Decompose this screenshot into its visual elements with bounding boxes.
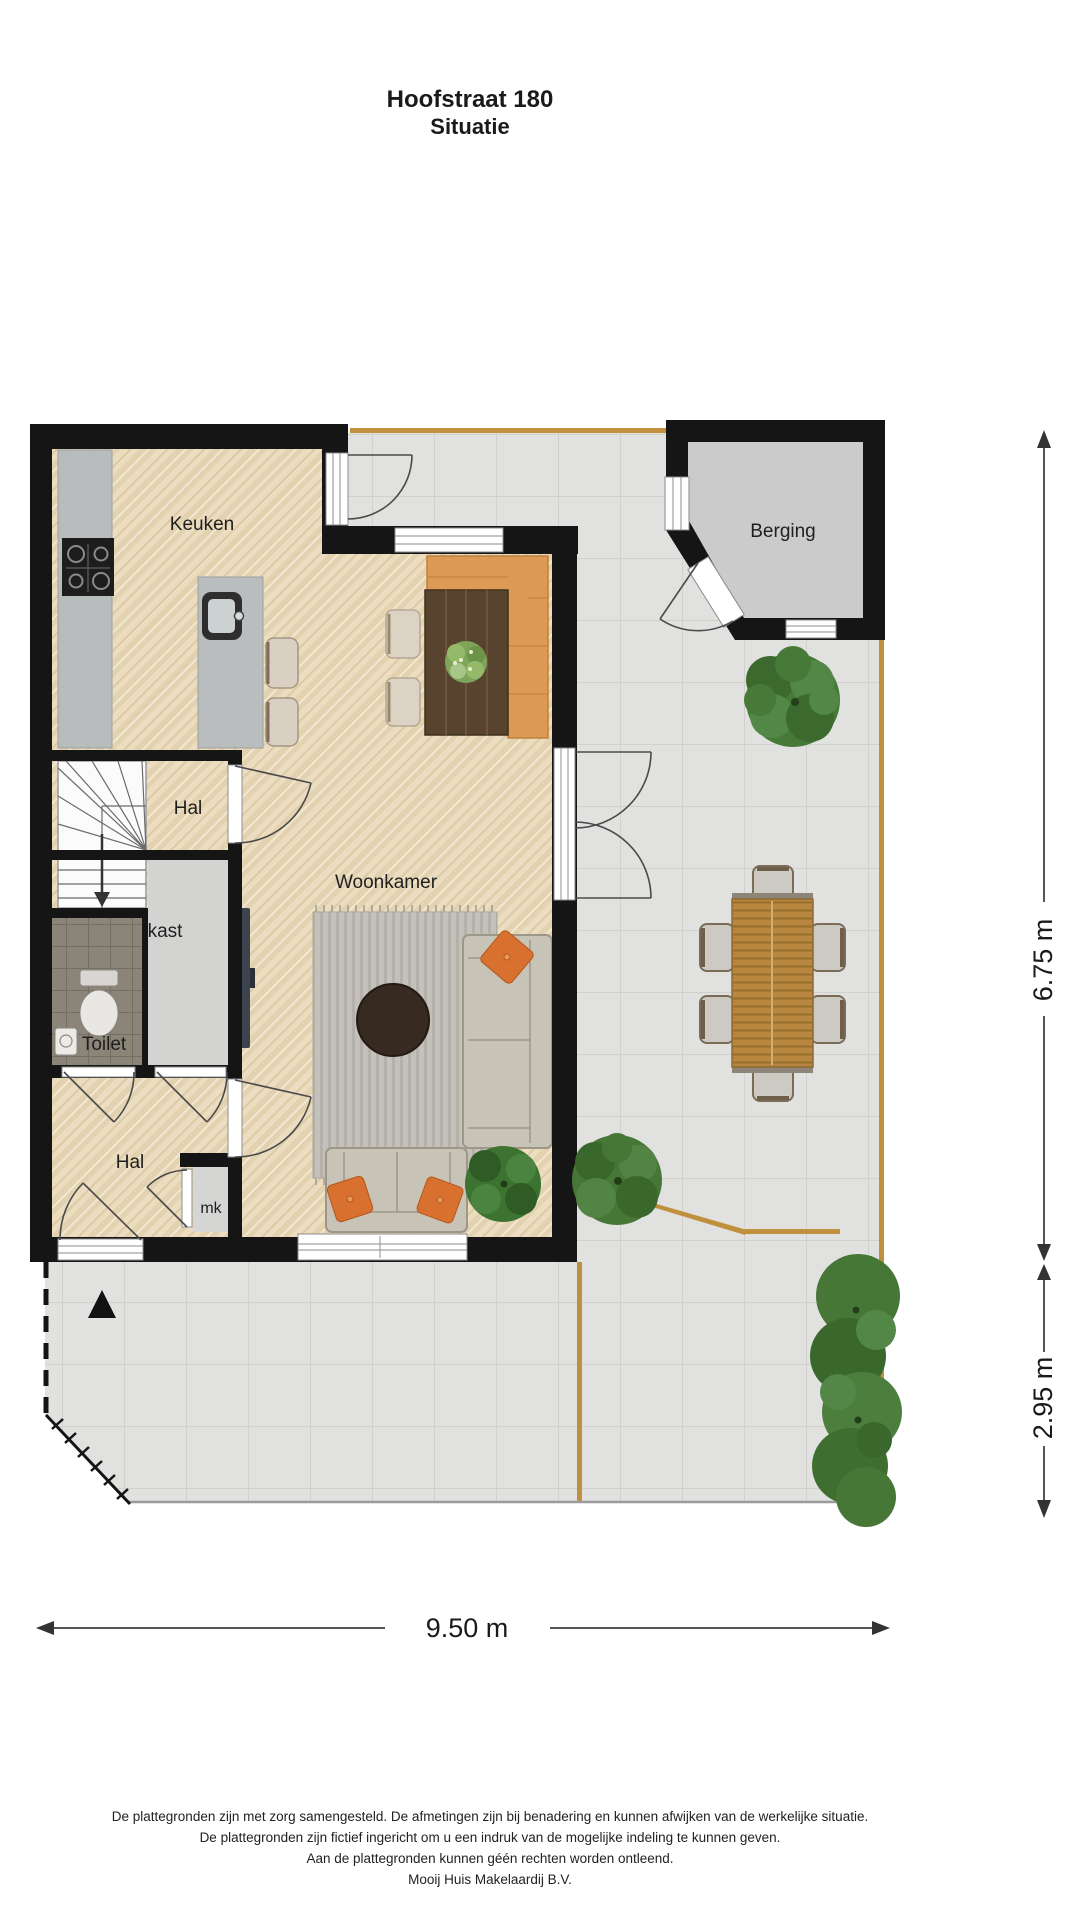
room-label-kast: kast bbox=[148, 921, 184, 942]
dimension-label-garden-depth: 6.75 m bbox=[1028, 919, 1058, 1002]
disclaimer-line-1: De plattegronden zijn met zorg samengest… bbox=[0, 1806, 980, 1827]
room-label-woonkamer: Woonkamer bbox=[335, 872, 438, 893]
room-label-berging: Berging bbox=[750, 521, 816, 542]
toilet-fixture-icon bbox=[80, 970, 118, 1036]
stove-icon bbox=[62, 538, 114, 596]
room-label-mk: mk bbox=[200, 1200, 222, 1217]
kast-door-opening bbox=[155, 1067, 226, 1077]
disclaimer-line-4: Mooij Huis Makelaardij B.V. bbox=[0, 1869, 980, 1890]
floor-plan-drawing: Keuken Berging Hal kast Toilet Woonkamer… bbox=[0, 0, 1080, 1920]
disclaimer: De plattegronden zijn met zorg samengest… bbox=[0, 1806, 980, 1890]
toilet-sink-icon bbox=[55, 1028, 77, 1055]
indoor-plant-icon bbox=[465, 1146, 541, 1222]
toilet-door-opening bbox=[62, 1067, 135, 1077]
kitchen-counter bbox=[58, 450, 112, 748]
front-door-opening bbox=[58, 1239, 143, 1260]
disclaimer-line-3: Aan de plattegronden kunnen géén rechten… bbox=[0, 1848, 980, 1869]
hedge-icon bbox=[810, 1254, 902, 1527]
side-door-opening bbox=[326, 453, 348, 525]
kast-floor bbox=[148, 860, 228, 1065]
dimension-garden-depth: 6.75 m bbox=[1028, 430, 1058, 1261]
room-label-toilet: Toilet bbox=[82, 1034, 127, 1055]
window-living-front bbox=[298, 1234, 467, 1260]
mk-door-opening bbox=[182, 1169, 192, 1227]
disclaimer-line-2: De plattegronden zijn fictief ingericht … bbox=[0, 1827, 980, 1848]
table-plant-icon bbox=[445, 641, 487, 683]
room-label-keuken: Keuken bbox=[170, 514, 234, 535]
floor-plan-page: Hoofstraat 180 Situatie bbox=[0, 0, 1080, 1920]
coffee-table bbox=[357, 984, 429, 1056]
room-label-hal-upper: Hal bbox=[174, 798, 203, 819]
window-dining-nook bbox=[395, 528, 503, 552]
dimension-plot-width: 9.50 m bbox=[36, 1613, 890, 1643]
room-label-hal-lower: Hal bbox=[116, 1152, 145, 1173]
dimension-label-plot-width: 9.50 m bbox=[426, 1613, 509, 1643]
hal-upper-door-opening bbox=[228, 765, 242, 843]
berging-window-left bbox=[665, 477, 689, 530]
hal-lower-door-opening bbox=[228, 1079, 242, 1157]
berging-window-bottom bbox=[786, 620, 836, 638]
sink-icon bbox=[202, 592, 244, 640]
french-doors-opening bbox=[554, 748, 575, 900]
dimension-front-garden-depth: 2.95 m bbox=[1028, 1264, 1058, 1518]
dimension-label-front-garden-depth: 2.95 m bbox=[1028, 1357, 1058, 1440]
